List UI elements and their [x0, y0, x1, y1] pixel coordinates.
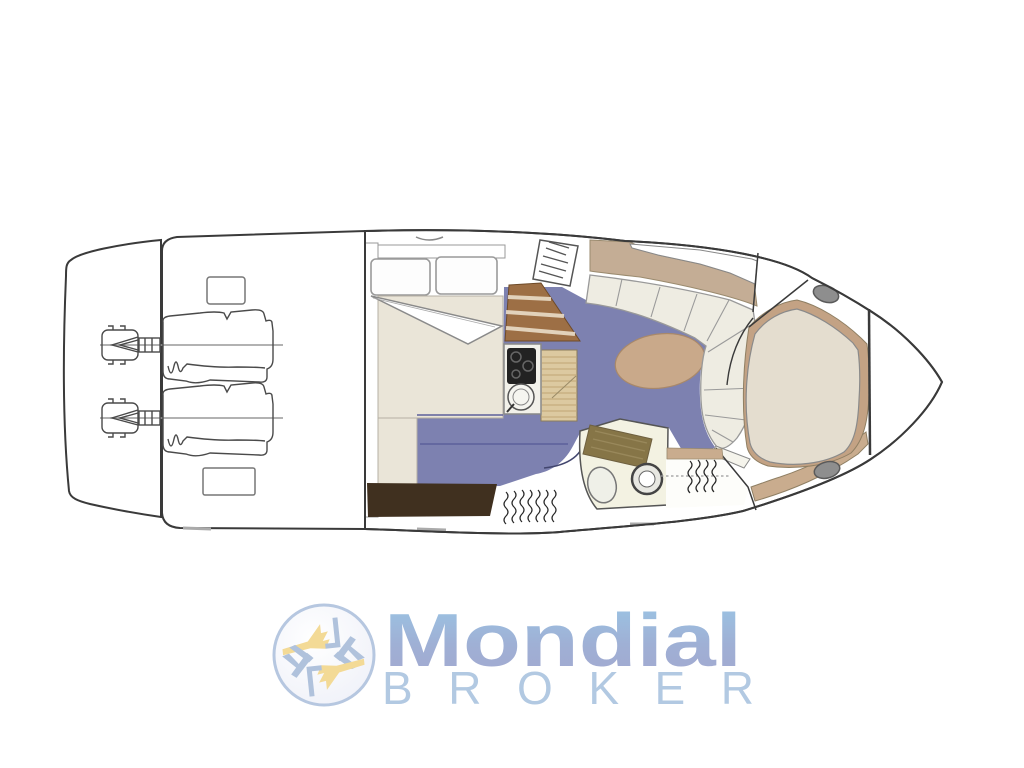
svg-text:Mondial: Mondial — [384, 598, 742, 682]
